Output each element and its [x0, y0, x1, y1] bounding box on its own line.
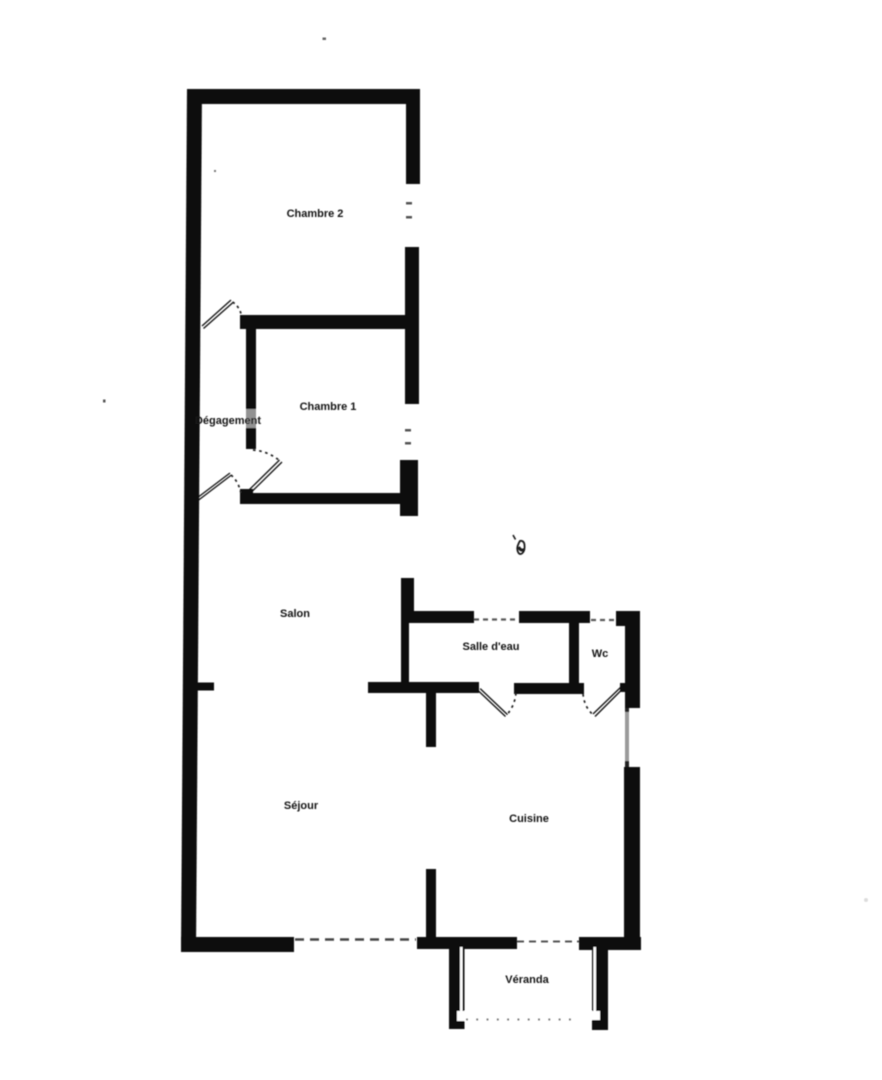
- svg-text:Chambre 2: Chambre 2: [287, 208, 344, 220]
- svg-text:Dégagement: Dégagement: [195, 415, 261, 427]
- svg-text:Chambre 1: Chambre 1: [300, 401, 357, 413]
- svg-text:Salon: Salon: [280, 608, 310, 620]
- svg-text:Véranda: Véranda: [505, 974, 549, 986]
- svg-text:Cuisine: Cuisine: [509, 813, 549, 825]
- svg-text:Salle d'eau: Salle d'eau: [462, 641, 519, 653]
- svg-text:Wc: Wc: [592, 648, 609, 660]
- svg-text:Séjour: Séjour: [284, 800, 319, 812]
